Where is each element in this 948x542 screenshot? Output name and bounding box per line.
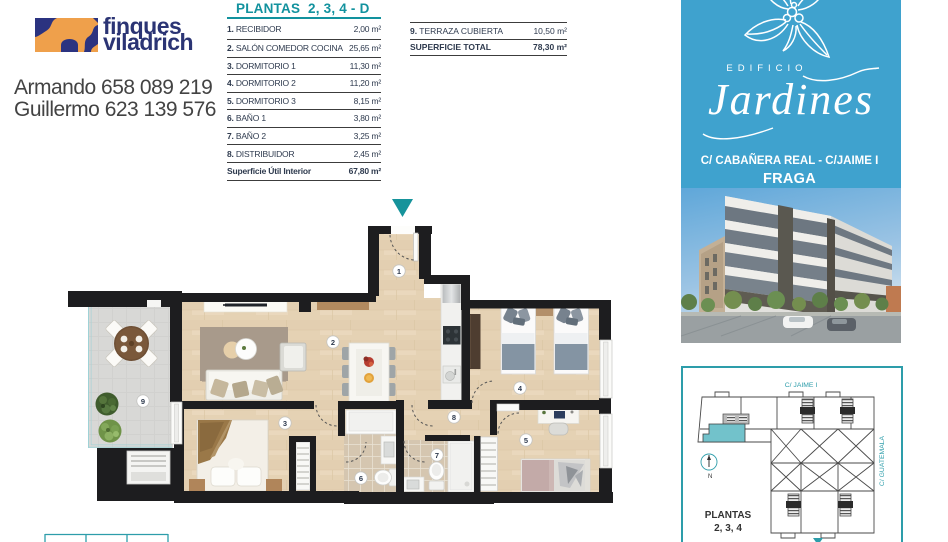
- svg-text:PLANTAS: PLANTAS: [705, 510, 752, 521]
- svg-text:1: 1: [397, 267, 401, 276]
- svg-text:C/ JAIME I: C/ JAIME I: [785, 382, 818, 389]
- svg-text:8: 8: [452, 413, 456, 422]
- svg-text:3: 3: [283, 419, 287, 428]
- svg-text:2, 3, 4: 2, 3, 4: [714, 523, 742, 534]
- svg-text:2: 2: [331, 338, 335, 347]
- svg-text:9: 9: [141, 397, 145, 406]
- svg-text:6: 6: [359, 474, 363, 483]
- svg-text:C/ GUATEMALA: C/ GUATEMALA: [879, 435, 886, 486]
- svg-text:7: 7: [435, 451, 439, 460]
- svg-text:5: 5: [524, 436, 528, 445]
- svg-text:N: N: [708, 474, 712, 480]
